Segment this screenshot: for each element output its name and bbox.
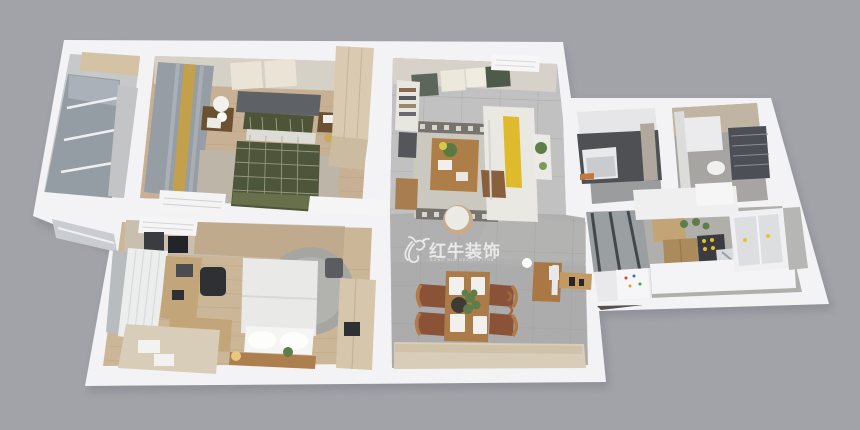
svg-text:HONG NIU DECORATION: HONG NIU DECORATION <box>430 258 494 262</box>
